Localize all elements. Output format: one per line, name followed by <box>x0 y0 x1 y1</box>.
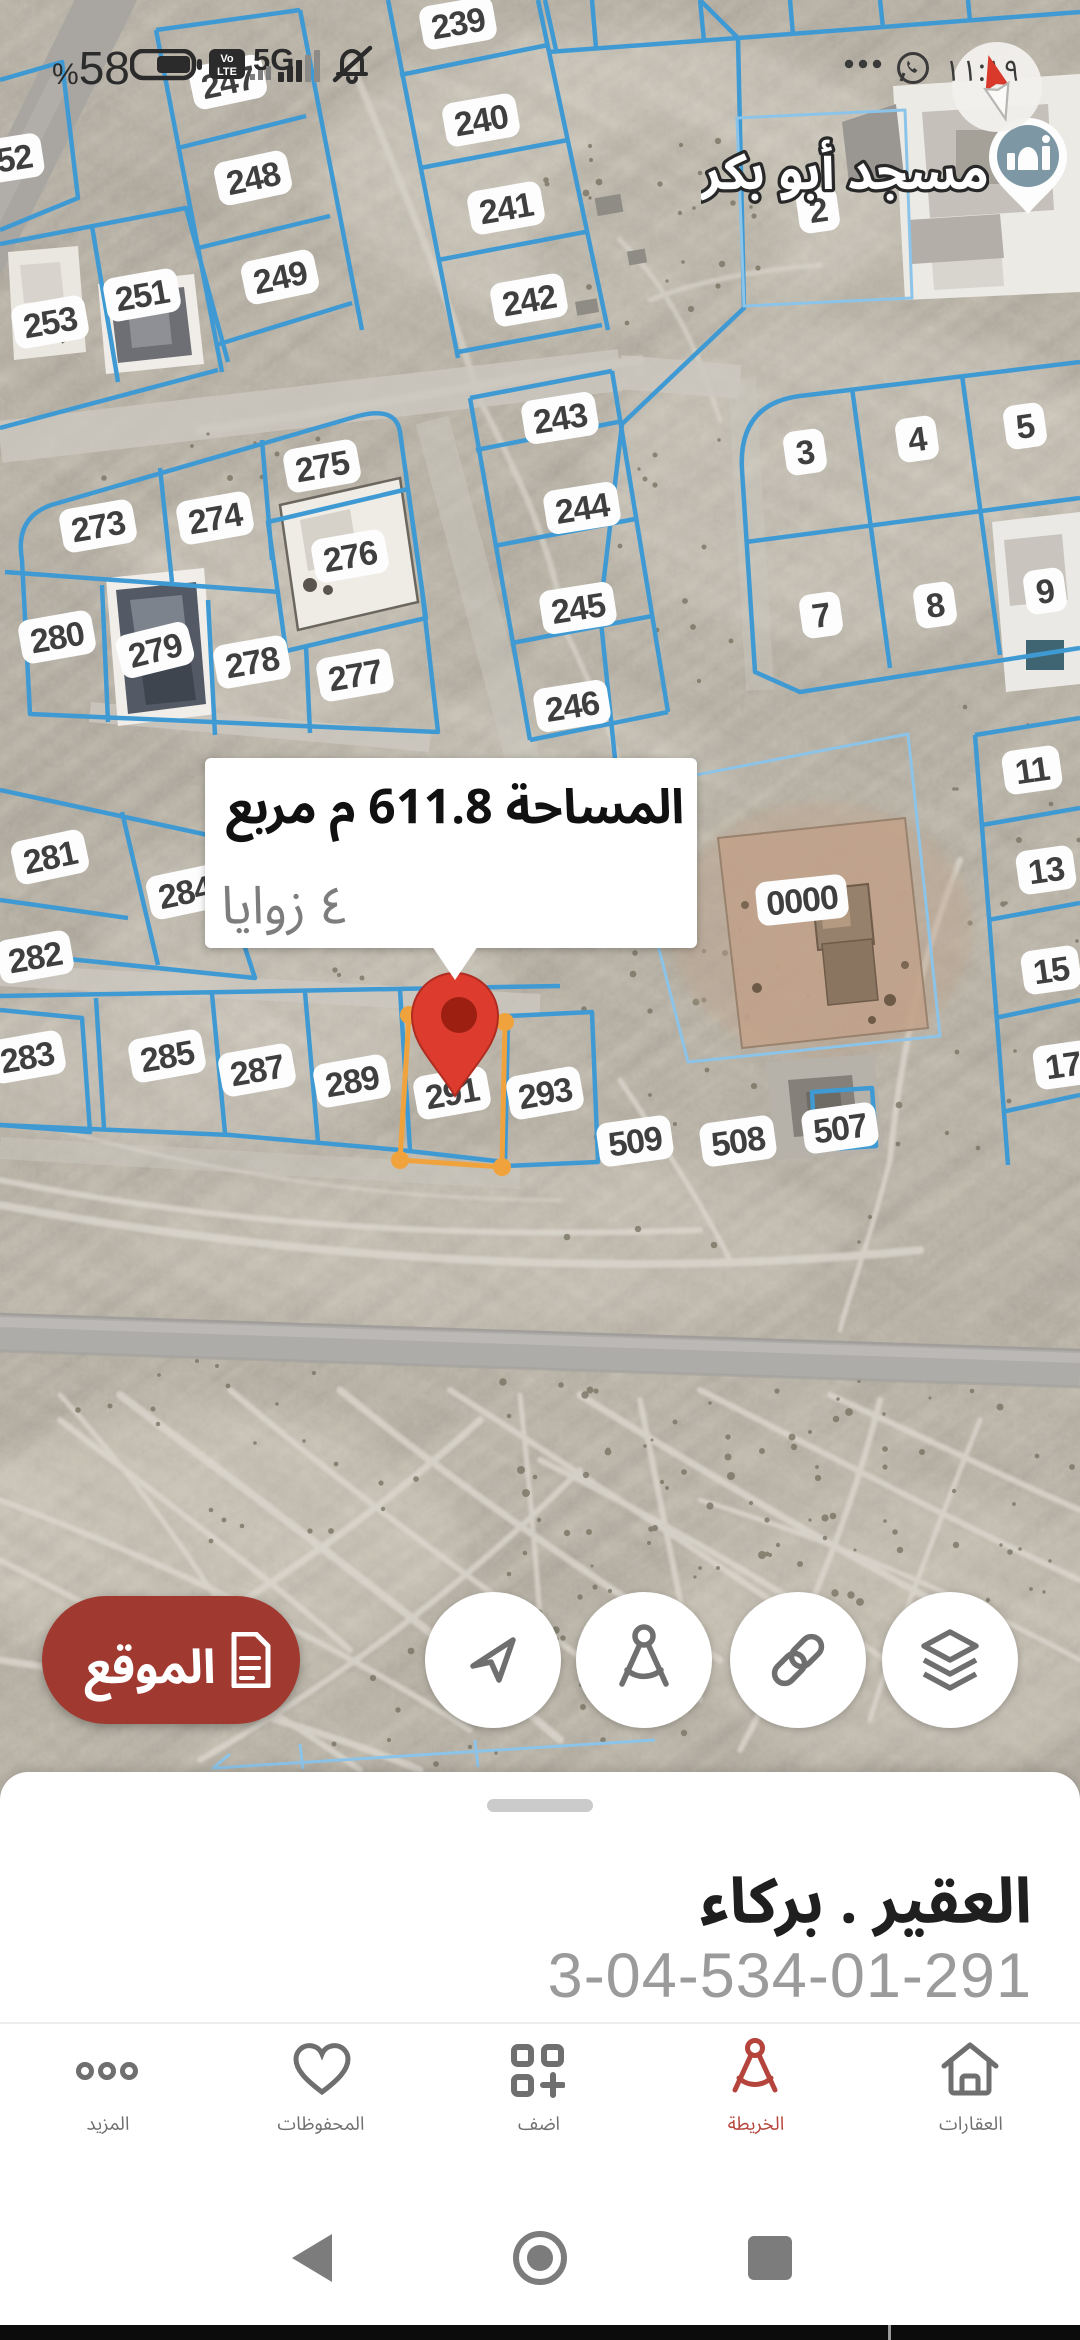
svg-text:17: 17 <box>1043 1045 1080 1088</box>
svg-text:52: 52 <box>0 137 35 180</box>
svg-text:15: 15 <box>1031 950 1072 993</box>
svg-text:11: 11 <box>1013 750 1052 792</box>
svg-text:508: 508 <box>709 1119 768 1164</box>
svg-text:Vo: Vo <box>220 53 234 65</box>
svg-text:13: 13 <box>1026 850 1067 893</box>
svg-text:0000: 0000 <box>764 878 839 923</box>
svg-text:507: 507 <box>811 1106 870 1151</box>
svg-text:LTE: LTE <box>217 66 237 78</box>
svg-text:509: 509 <box>606 1119 665 1164</box>
